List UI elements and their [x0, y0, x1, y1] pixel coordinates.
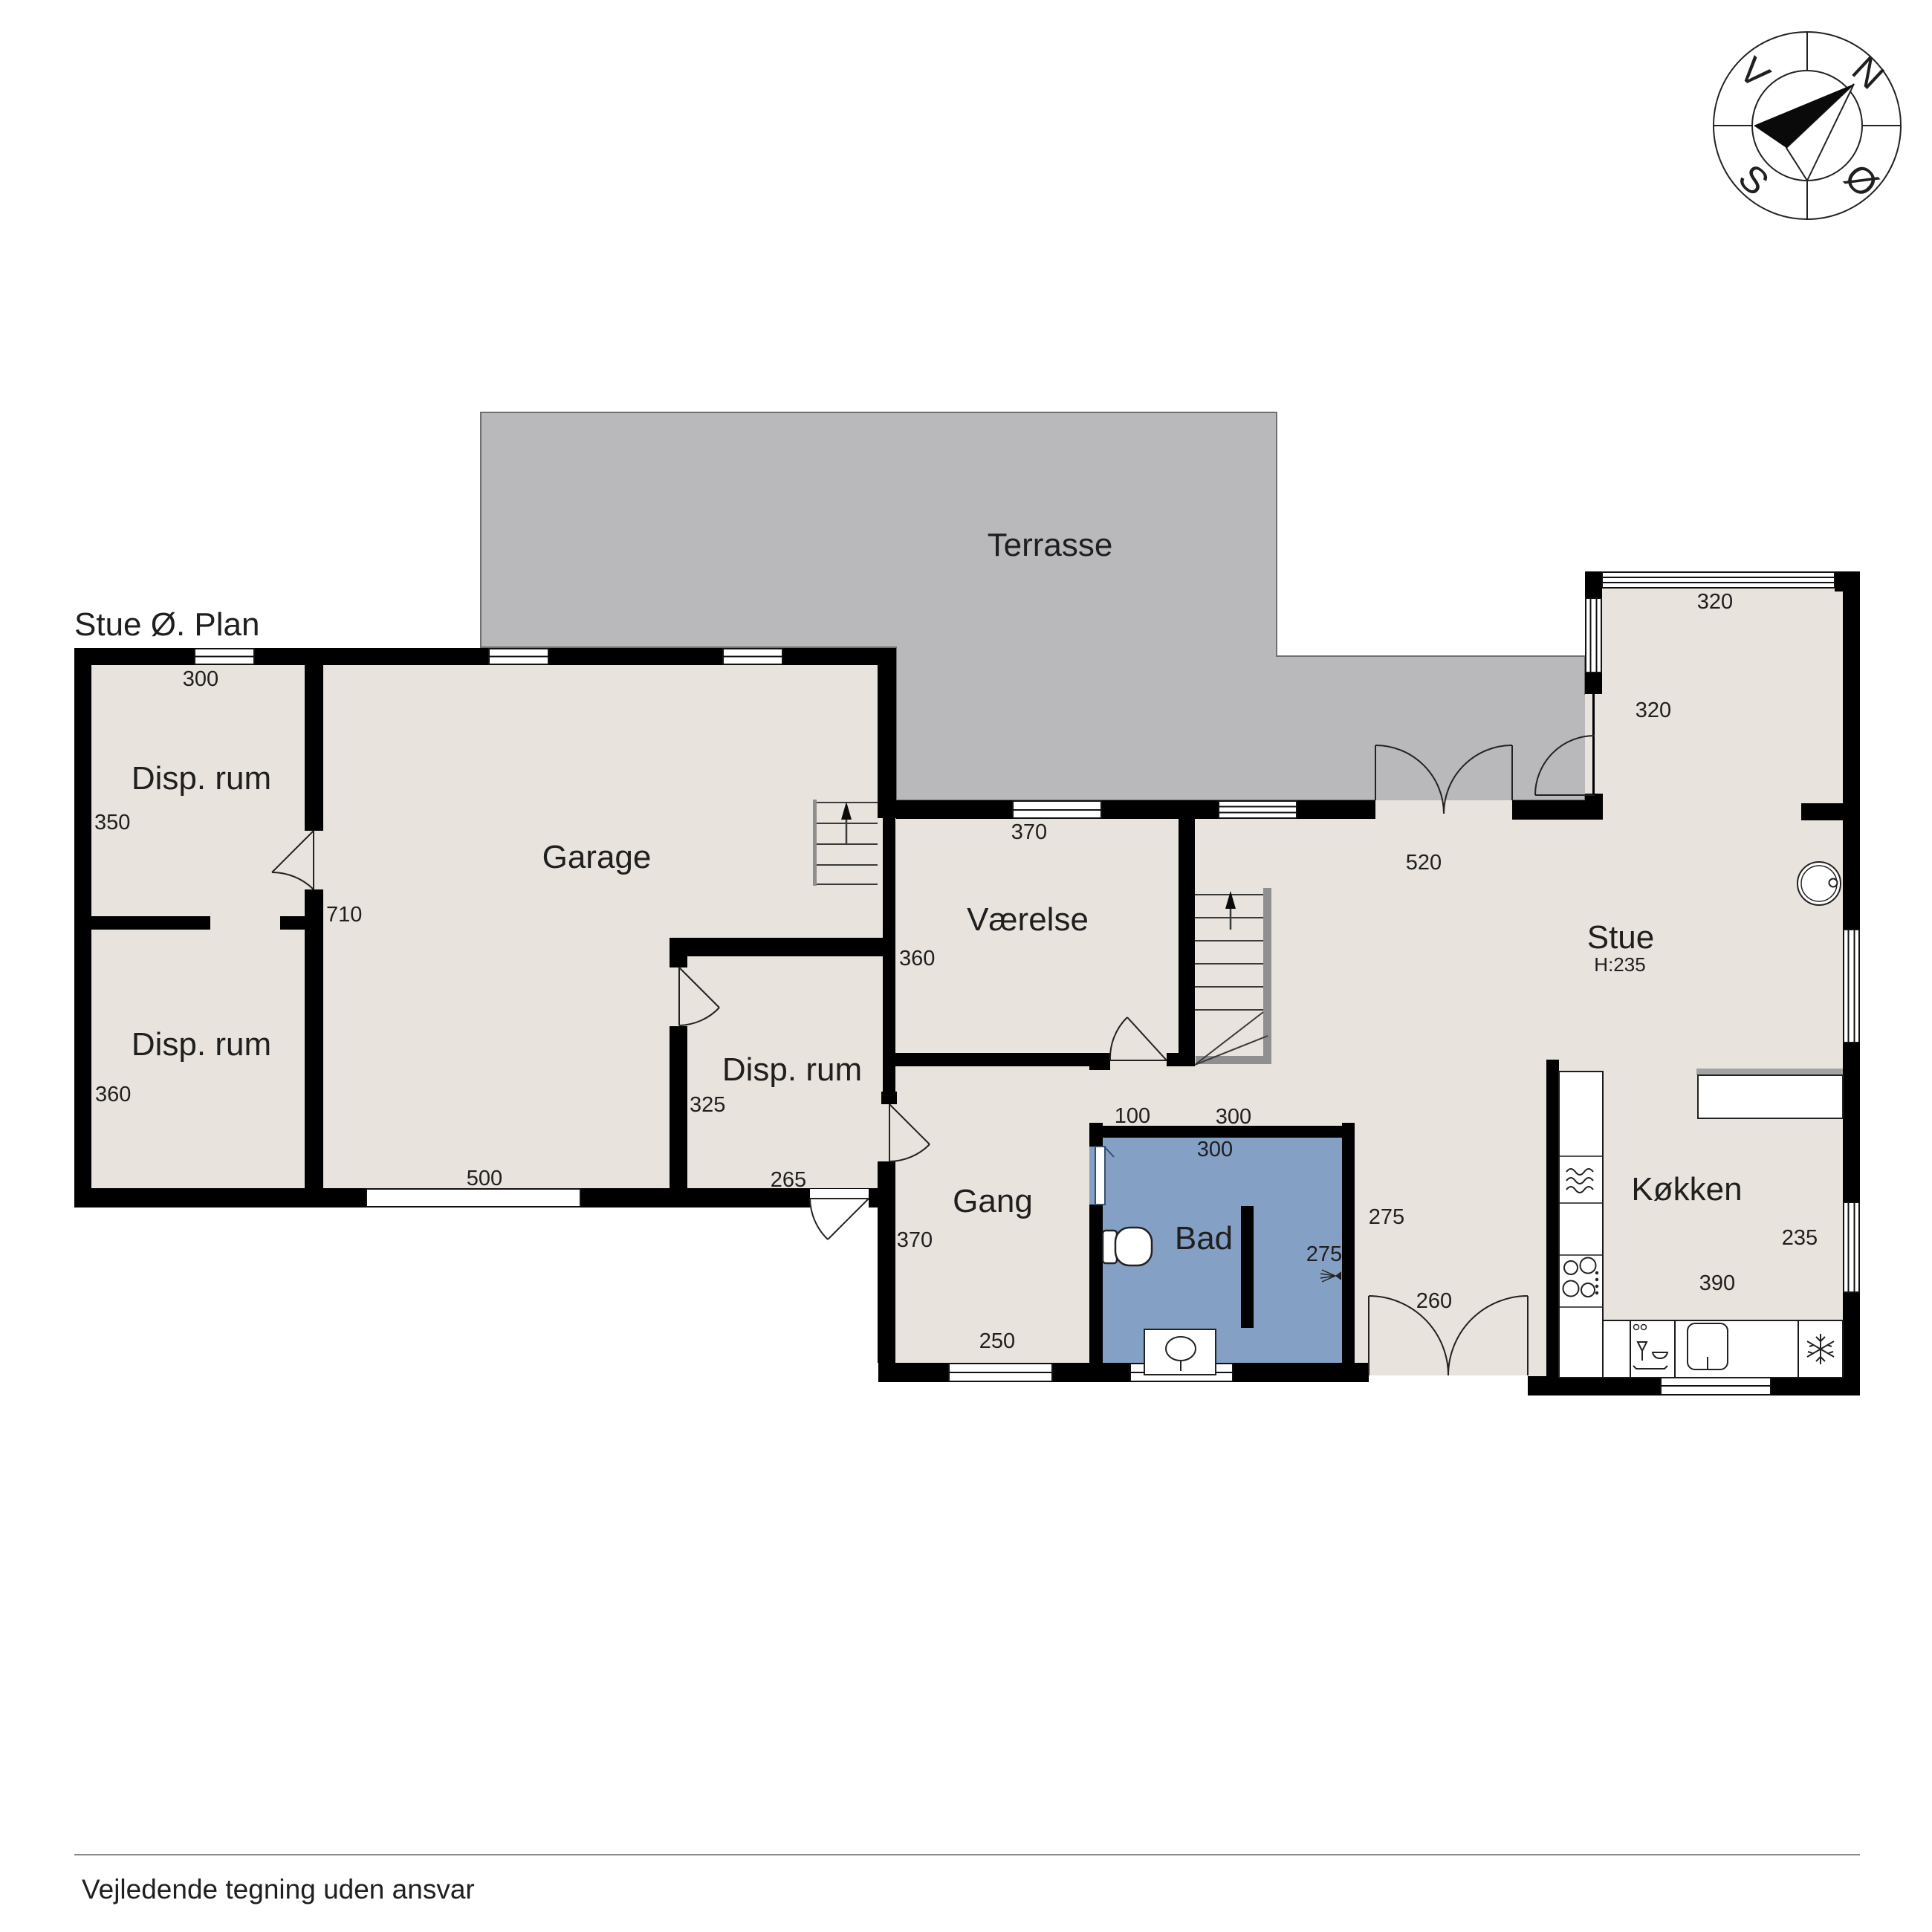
svg-text:500: 500 [467, 1167, 502, 1190]
svg-text:Disp. rum: Disp. rum [132, 760, 271, 797]
svg-text:Bad: Bad [1175, 1220, 1233, 1257]
svg-text:235: 235 [1782, 1226, 1818, 1250]
svg-text:360: 360 [899, 947, 935, 970]
svg-text:275: 275 [1369, 1205, 1404, 1229]
svg-text:320: 320 [1636, 698, 1671, 722]
svg-text:Disp. rum: Disp. rum [132, 1026, 271, 1063]
svg-text:Køkken: Køkken [1631, 1171, 1742, 1207]
svg-text:100: 100 [1115, 1104, 1150, 1128]
svg-text:710: 710 [326, 903, 362, 927]
svg-text:Terrasse: Terrasse [988, 527, 1113, 563]
svg-text:250: 250 [979, 1329, 1015, 1353]
svg-text:Disp. rum: Disp. rum [722, 1051, 862, 1088]
svg-text:300: 300 [1216, 1105, 1251, 1129]
svg-text:300: 300 [183, 667, 218, 691]
svg-text:Stue: Stue [1587, 919, 1655, 956]
svg-text:325: 325 [690, 1093, 725, 1117]
svg-text:Værelse: Værelse [967, 901, 1089, 938]
svg-text:390: 390 [1699, 1271, 1735, 1295]
svg-text:350: 350 [94, 811, 130, 834]
svg-text:Vejledende tegning uden ansvar: Vejledende tegning uden ansvar [82, 1874, 475, 1905]
svg-text:260: 260 [1416, 1289, 1452, 1313]
svg-text:300: 300 [1197, 1138, 1233, 1161]
svg-text:Stue Ø. Plan: Stue Ø. Plan [74, 606, 259, 643]
svg-text:Gang: Gang [953, 1183, 1033, 1219]
svg-text:320: 320 [1697, 590, 1733, 614]
svg-text:H:235: H:235 [1594, 953, 1645, 976]
svg-text:Garage: Garage [542, 839, 652, 875]
svg-text:360: 360 [95, 1083, 131, 1106]
svg-text:275: 275 [1306, 1242, 1342, 1266]
svg-text:370: 370 [897, 1228, 933, 1252]
svg-text:520: 520 [1406, 851, 1442, 875]
svg-text:265: 265 [771, 1168, 806, 1192]
svg-text:370: 370 [1011, 820, 1047, 844]
